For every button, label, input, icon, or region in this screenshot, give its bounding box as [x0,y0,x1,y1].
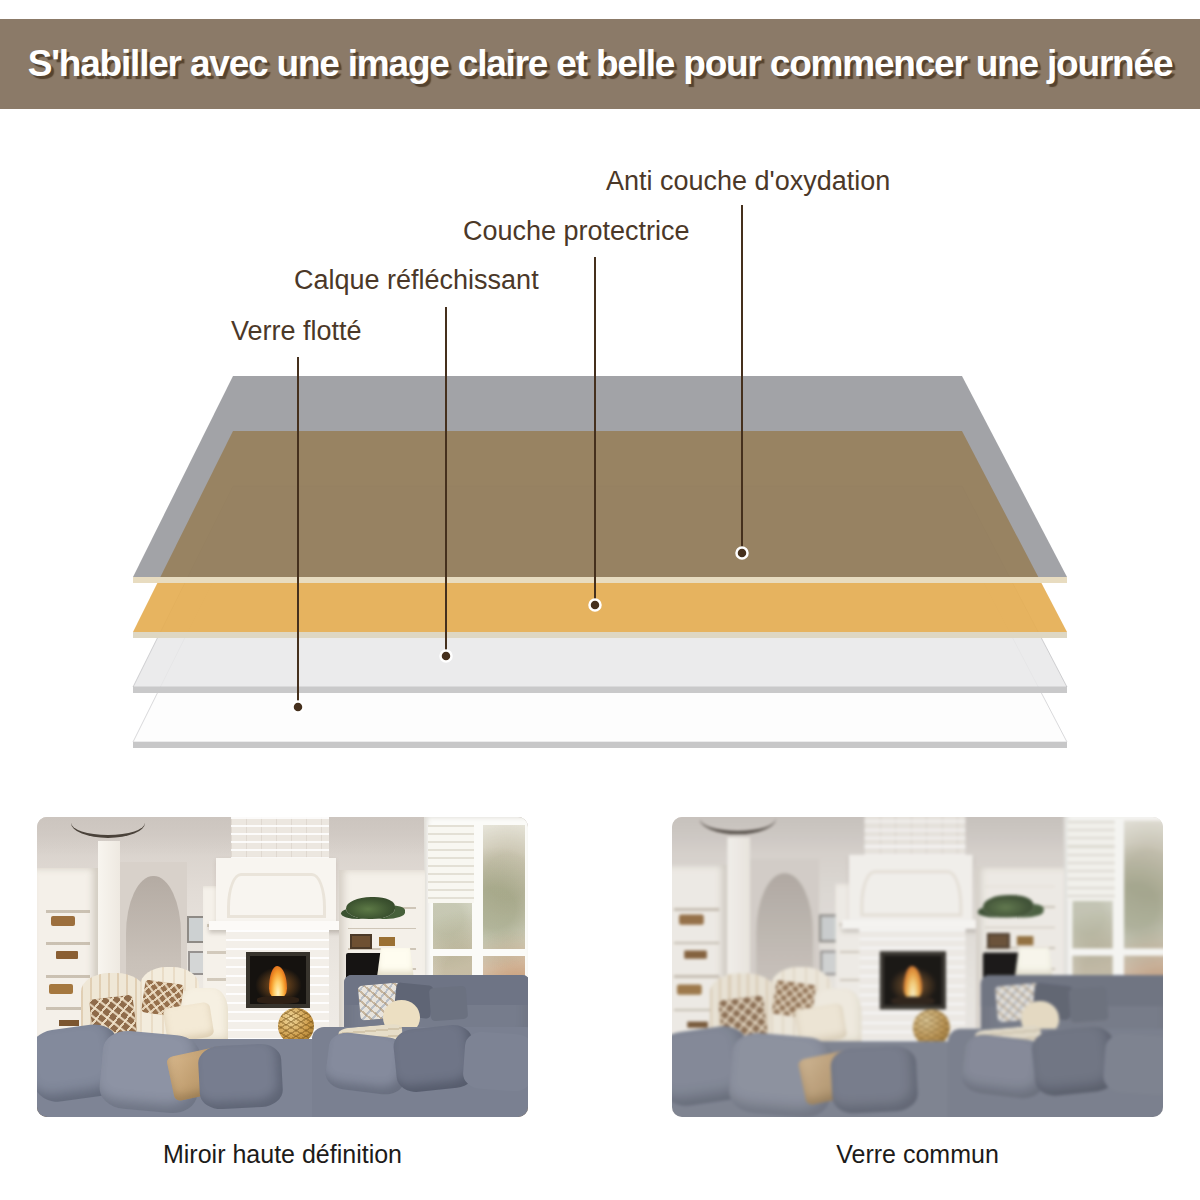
label-couche-protectrice: Couche protectrice [463,216,690,247]
living-room-photo [672,817,1163,1117]
caption-verre-commun: Verre commun [672,1140,1163,1169]
layer-anti-oxidation [133,376,1067,583]
window-blind [428,825,474,903]
layer-reflective-edge [133,687,1067,693]
fireplace-mantel [216,858,336,923]
label-calque-reflechissant: Calque réfléchissant [294,265,539,296]
caption-miroir-haute-definition: Miroir haute définition [37,1140,528,1169]
fireplace-mantel [849,854,973,920]
callout-dot-calque-reflechissant [441,651,452,662]
layer-anti-oxidation-edge [133,577,1067,583]
shelf-decor [987,933,1010,948]
pillow-gray [1068,986,1108,1023]
fire-logs [891,997,934,1005]
callout-dot-couche-protectrice [590,600,601,611]
mantel-shelf [209,921,346,931]
layer-anti-oxidation-face [133,376,1067,577]
fire-logs [257,996,299,1004]
floor-lamp-shade [1015,947,1052,976]
brick-chimney [231,817,329,861]
header-banner: S'habiller avec une image claire et bell… [0,19,1200,109]
banner-title: S'habiller avec une image claire et bell… [28,43,1173,85]
sofa-pillow-gray [830,1045,919,1114]
photo-verre-commun [672,817,1163,1117]
sofa-pillow-gray [197,1043,284,1110]
shelf-decor [350,934,372,949]
potted-plant [346,897,395,920]
sofa-pillow-gray [1103,1033,1163,1097]
window-blind [1067,820,1115,900]
layer-float-glass-edge [133,742,1067,748]
brick-chimney [864,817,965,857]
potted-plant [983,894,1034,917]
photo-miroir-haute-definition [37,817,528,1117]
label-verre-flotte: Verre flotté [231,316,362,347]
layer-protective-edge [133,632,1067,638]
mantel-shelf [842,919,984,929]
sofa-pillow-gray [462,1031,528,1093]
floor-lamp-shade [377,948,413,977]
callout-dot-anti-oxydation [737,548,748,559]
pillow-gray [429,985,468,1020]
callout-dot-verre-flotte [293,702,304,713]
living-room-photo [37,817,528,1117]
label-anti-couche-oxydation: Anti couche d'oxydation [606,166,890,197]
